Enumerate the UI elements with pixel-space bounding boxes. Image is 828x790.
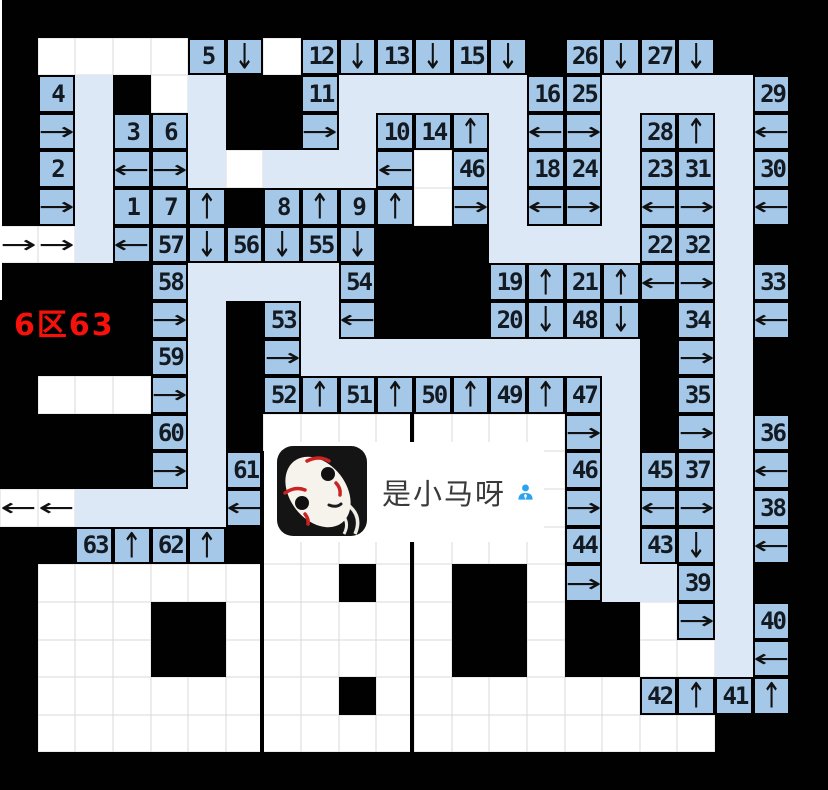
number-cell-39[interactable]: 39 [677,564,715,602]
path-cell[interactable] [113,489,151,527]
number-cell-14[interactable]: 14 [414,113,452,151]
arrow-right-cell[interactable]: → [151,376,189,414]
wall-cell [151,640,189,678]
arrow-left-cell[interactable]: ← [113,226,151,264]
empty-cell[interactable] [489,715,527,753]
path-cell[interactable] [188,113,226,151]
number-cell-63[interactable]: 63 [75,527,113,565]
arrow-right-cell[interactable]: → [677,263,715,301]
path-cell[interactable] [188,376,226,414]
path-cell[interactable] [527,339,565,377]
path-cell[interactable] [301,150,339,188]
path-cell[interactable] [715,339,753,377]
empty-cell[interactable] [113,564,151,602]
watermark-name: 是小马呀 [382,474,535,510]
number-cell-52[interactable]: 52 [263,376,301,414]
number-cell-47[interactable]: 47 [565,376,603,414]
path-cell[interactable] [640,564,678,602]
number-cell-57[interactable]: 57 [151,226,189,264]
number-cell-37[interactable]: 37 [677,451,715,489]
empty-cell[interactable] [75,677,113,715]
empty-cell[interactable] [640,640,678,678]
number-cell-54[interactable]: 54 [339,263,377,301]
number-cell-45[interactable]: 45 [640,451,678,489]
path-cell[interactable] [715,263,753,301]
path-cell[interactable] [301,301,339,339]
empty-cell[interactable] [151,677,189,715]
empty-cell[interactable] [263,38,301,76]
number-cell-2[interactable]: 2 [38,150,76,188]
number-cell-44[interactable]: 44 [565,527,603,565]
path-cell[interactable] [452,75,490,113]
arrow-up-cell[interactable]: ↑ [452,376,490,414]
empty-cell[interactable] [226,640,264,678]
path-cell[interactable] [715,489,753,527]
empty-cell[interactable] [113,677,151,715]
arrow-up-cell[interactable]: ↑ [677,677,715,715]
path-cell[interactable] [602,414,640,452]
path-cell[interactable] [715,451,753,489]
number-cell-21[interactable]: 21 [565,263,603,301]
wall-cell [226,301,264,339]
path-cell[interactable] [75,226,113,264]
arrow-right-cell[interactable]: → [452,188,490,226]
wall-cell [715,715,753,753]
number-cell-13[interactable]: 13 [376,38,414,76]
empty-cell[interactable] [113,715,151,753]
arrow-right-cell[interactable]: → [151,150,189,188]
empty-cell[interactable] [489,677,527,715]
empty-cell[interactable] [452,677,490,715]
arrow-up-cell[interactable]: ↑ [376,188,414,226]
number-cell-26[interactable]: 26 [565,38,603,76]
path-cell[interactable] [452,339,490,377]
number-cell-1[interactable]: 1 [113,188,151,226]
number-cell-3[interactable]: 3 [113,113,151,151]
empty-cell[interactable] [151,75,189,113]
number-cell-12[interactable]: 12 [301,38,339,76]
number-cell-25[interactable]: 25 [565,75,603,113]
arrow-up-cell[interactable]: ↑ [301,376,339,414]
empty-cell[interactable] [188,677,226,715]
empty-cell[interactable] [414,564,452,602]
empty-cell[interactable] [376,602,414,640]
number-cell-11[interactable]: 11 [301,75,339,113]
empty-cell[interactable] [113,38,151,76]
path-cell[interactable] [376,339,414,377]
wall-cell [715,38,753,76]
empty-cell[interactable] [565,677,603,715]
path-cell[interactable] [75,75,113,113]
path-cell[interactable] [715,113,753,151]
empty-cell[interactable] [113,640,151,678]
path-cell[interactable] [188,75,226,113]
number-cell-36[interactable]: 36 [753,414,791,452]
path-cell[interactable] [602,150,640,188]
empty-cell[interactable] [565,715,603,753]
number-cell-49[interactable]: 49 [489,376,527,414]
empty-cell[interactable] [75,640,113,678]
arrow-right-cell[interactable]: → [151,301,189,339]
arrow-left-cell[interactable]: ← [38,489,76,527]
number-cell-22[interactable]: 22 [640,226,678,264]
arrow-up-cell[interactable]: ↑ [301,188,339,226]
path-cell[interactable] [602,75,640,113]
path-cell[interactable] [715,376,753,414]
number-cell-48[interactable]: 48 [565,301,603,339]
arrow-left-cell[interactable]: ← [753,113,791,151]
path-cell[interactable] [715,226,753,264]
number-cell-42[interactable]: 42 [640,677,678,715]
arrow-left-cell[interactable]: ← [640,263,678,301]
empty-cell[interactable] [188,715,226,753]
empty-cell[interactable] [226,677,264,715]
arrow-left-cell[interactable]: ← [226,489,264,527]
path-cell[interactable] [188,301,226,339]
arrow-right-cell[interactable]: → [38,226,76,264]
empty-cell[interactable] [38,602,76,640]
number-cell-29[interactable]: 29 [753,75,791,113]
arrow-down-cell[interactable]: ↓ [677,38,715,76]
empty-cell[interactable] [151,564,189,602]
arrow-down-cell[interactable]: ↓ [602,38,640,76]
arrow-right-cell[interactable]: → [677,414,715,452]
path-cell[interactable] [226,263,264,301]
empty-cell[interactable] [301,640,339,678]
path-cell[interactable] [263,150,301,188]
path-cell[interactable] [263,263,301,301]
empty-cell[interactable] [640,715,678,753]
path-cell[interactable] [715,188,753,226]
arrow-down-cell[interactable]: ↓ [188,226,226,264]
empty-cell[interactable] [38,677,76,715]
arrow-left-cell[interactable]: ← [753,527,791,565]
number-cell-16[interactable]: 16 [527,75,565,113]
path-cell[interactable] [301,263,339,301]
number-cell-51[interactable]: 51 [339,376,377,414]
empty-cell[interactable] [414,715,452,753]
path-cell[interactable] [75,113,113,151]
number-cell-43[interactable]: 43 [640,527,678,565]
path-cell[interactable] [715,640,753,678]
empty-cell[interactable] [113,376,151,414]
wall-cell [790,226,828,264]
path-cell[interactable] [188,150,226,188]
empty-cell[interactable] [226,602,264,640]
arrow-up-cell[interactable]: ↑ [188,188,226,226]
path-cell[interactable] [188,339,226,377]
path-cell[interactable] [715,602,753,640]
arrow-left-cell[interactable]: ← [113,150,151,188]
empty-cell[interactable] [602,677,640,715]
empty-cell[interactable] [75,715,113,753]
empty-cell[interactable] [263,564,301,602]
path-cell[interactable] [339,75,377,113]
empty-cell[interactable] [414,677,452,715]
empty-cell[interactable] [38,640,76,678]
number-cell-27[interactable]: 27 [640,38,678,76]
path-cell[interactable] [677,75,715,113]
arrow-left-cell[interactable]: ← [753,451,791,489]
arrow-right-cell[interactable]: → [0,226,38,264]
wall-cell [0,527,38,565]
empty-cell[interactable] [677,715,715,753]
empty-cell[interactable] [38,38,76,76]
wall-cell [790,113,828,151]
number-cell-33[interactable]: 33 [753,263,791,301]
path-cell[interactable] [715,301,753,339]
arrow-right-cell[interactable]: → [677,489,715,527]
empty-cell[interactable] [677,640,715,678]
path-cell[interactable] [602,376,640,414]
number-cell-34[interactable]: 34 [677,301,715,339]
empty-cell[interactable] [640,602,678,640]
empty-cell[interactable] [75,376,113,414]
path-cell[interactable] [602,188,640,226]
path-cell[interactable] [188,451,226,489]
wall-cell [753,226,791,264]
path-cell[interactable] [602,113,640,151]
path-cell[interactable] [188,489,226,527]
empty-cell[interactable] [527,564,565,602]
number-cell-8[interactable]: 8 [263,188,301,226]
arrow-left-cell[interactable]: ← [753,640,791,678]
path-cell[interactable] [489,150,527,188]
path-cell[interactable] [602,564,640,602]
empty-cell[interactable] [452,715,490,753]
path-cell[interactable] [602,451,640,489]
empty-cell[interactable] [113,602,151,640]
arrow-left-cell[interactable]: ← [527,188,565,226]
path-cell[interactable] [489,113,527,151]
number-cell-60[interactable]: 60 [151,414,189,452]
path-cell[interactable] [715,564,753,602]
empty-cell[interactable] [301,564,339,602]
empty-cell[interactable] [301,715,339,753]
path-cell[interactable] [489,188,527,226]
arrow-up-cell[interactable]: ↑ [527,376,565,414]
arrow-up-cell[interactable]: ↑ [602,263,640,301]
empty-cell[interactable] [188,564,226,602]
arrow-up-cell[interactable]: ↑ [753,677,791,715]
empty-cell[interactable] [376,715,414,753]
empty-cell[interactable] [602,715,640,753]
path-cell[interactable] [715,150,753,188]
arrow-right-cell[interactable]: → [565,188,603,226]
empty-cell[interactable] [414,188,452,226]
number-cell-32[interactable]: 32 [677,226,715,264]
number-cell-28[interactable]: 28 [640,113,678,151]
arrow-right-cell[interactable]: → [151,451,189,489]
arrow-left-cell[interactable]: ← [753,301,791,339]
empty-cell[interactable] [339,602,377,640]
path-cell[interactable] [640,75,678,113]
wall-cell [376,0,414,38]
path-cell[interactable] [715,75,753,113]
number-cell-15[interactable]: 15 [452,38,490,76]
arrow-up-cell[interactable]: ↑ [113,527,151,565]
number-cell-59[interactable]: 59 [151,339,189,377]
arrow-right-cell[interactable]: → [263,339,301,377]
path-cell[interactable] [376,75,414,113]
path-cell[interactable] [715,527,753,565]
wall-cell [38,451,76,489]
path-cell[interactable] [339,113,377,151]
arrow-left-cell[interactable]: ← [753,188,791,226]
arrow-down-cell[interactable]: ↓ [489,38,527,76]
arrow-right-cell[interactable]: → [565,489,603,527]
empty-cell[interactable] [75,564,113,602]
empty-cell[interactable] [414,150,452,188]
path-cell[interactable] [602,226,640,264]
empty-cell[interactable] [38,376,76,414]
empty-cell[interactable] [527,677,565,715]
number-cell-53[interactable]: 53 [263,301,301,339]
empty-cell[interactable] [527,602,565,640]
empty-cell[interactable] [151,715,189,753]
number-cell-55[interactable]: 55 [301,226,339,264]
number-cell-10[interactable]: 10 [376,113,414,151]
number-cell-6[interactable]: 6 [151,113,189,151]
empty-cell[interactable] [263,602,301,640]
empty-cell[interactable] [301,677,339,715]
number-cell-62[interactable]: 62 [151,527,189,565]
empty-cell[interactable] [263,715,301,753]
arrow-up-cell[interactable]: ↑ [452,113,490,151]
watermark-text: 是小马呀 [382,471,506,513]
path-cell[interactable] [188,263,226,301]
arrow-down-cell[interactable]: ↓ [339,226,377,264]
number-cell-46[interactable]: 46 [452,150,490,188]
arrow-up-cell[interactable]: ↑ [527,263,565,301]
number-cell-19[interactable]: 19 [489,263,527,301]
number-cell-9[interactable]: 9 [339,188,377,226]
arrow-down-cell[interactable]: ↓ [263,226,301,264]
empty-cell[interactable] [226,150,264,188]
path-cell[interactable] [527,226,565,264]
arrow-down-cell[interactable]: ↓ [414,38,452,76]
path-cell[interactable] [489,339,527,377]
number-cell-20[interactable]: 20 [489,301,527,339]
arrow-right-cell[interactable]: → [565,564,603,602]
number-cell-7[interactable]: 7 [151,188,189,226]
arrow-right-cell[interactable]: → [677,188,715,226]
number-cell-58[interactable]: 58 [151,263,189,301]
empty-cell[interactable] [75,38,113,76]
number-cell-23[interactable]: 23 [640,150,678,188]
path-cell[interactable] [565,226,603,264]
arrow-right-cell[interactable]: → [565,113,603,151]
path-cell[interactable] [565,339,603,377]
arrow-down-cell[interactable]: ↓ [226,38,264,76]
number-cell-46[interactable]: 46 [565,451,603,489]
arrow-left-cell[interactable]: ← [376,150,414,188]
path-cell[interactable] [339,339,377,377]
number-cell-5[interactable]: 5 [188,38,226,76]
empty-cell[interactable] [376,640,414,678]
number-cell-40[interactable]: 40 [753,602,791,640]
path-cell[interactable] [188,414,226,452]
empty-cell[interactable] [414,602,452,640]
arrow-right-cell[interactable]: → [677,339,715,377]
number-cell-35[interactable]: 35 [677,376,715,414]
arrow-left-cell[interactable]: ← [339,301,377,339]
arrow-left-cell[interactable]: ← [0,489,38,527]
arrow-right-cell[interactable]: → [38,188,76,226]
empty-cell[interactable] [263,677,301,715]
arrow-up-cell[interactable]: ↑ [376,376,414,414]
empty-cell[interactable] [38,564,76,602]
number-cell-18[interactable]: 18 [527,150,565,188]
wall-cell [527,752,565,790]
path-cell[interactable] [602,339,640,377]
empty-cell[interactable] [75,602,113,640]
arrow-down-cell[interactable]: ↓ [602,301,640,339]
arrow-right-cell[interactable]: → [301,113,339,151]
arrow-left-cell[interactable]: ← [640,188,678,226]
arrow-right-cell[interactable]: → [565,414,603,452]
empty-cell[interactable] [339,715,377,753]
number-cell-4[interactable]: 4 [38,75,76,113]
empty-cell[interactable] [151,38,189,76]
empty-cell[interactable] [376,564,414,602]
number-cell-41[interactable]: 41 [715,677,753,715]
path-cell[interactable] [339,150,377,188]
number-cell-31[interactable]: 31 [677,150,715,188]
arrow-up-cell[interactable]: ↑ [188,527,226,565]
empty-cell[interactable] [226,564,264,602]
path-cell[interactable] [489,226,527,264]
path-cell[interactable] [151,489,189,527]
path-cell[interactable] [75,489,113,527]
arrow-down-cell[interactable]: ↓ [527,301,565,339]
arrow-down-cell[interactable]: ↓ [339,38,377,76]
wall-cell [640,376,678,414]
arrow-right-cell[interactable]: → [677,602,715,640]
wall-cell [565,0,603,38]
empty-cell[interactable] [414,640,452,678]
number-cell-61[interactable]: 61 [226,451,264,489]
number-cell-50[interactable]: 50 [414,376,452,414]
path-cell[interactable] [414,339,452,377]
path-cell[interactable] [414,75,452,113]
empty-cell[interactable] [301,602,339,640]
number-cell-56[interactable]: 56 [226,226,264,264]
path-cell[interactable] [75,150,113,188]
empty-cell[interactable] [376,677,414,715]
arrow-left-cell[interactable]: ← [640,489,678,527]
empty-cell[interactable] [527,715,565,753]
path-cell[interactable] [301,339,339,377]
arrow-down-cell[interactable]: ↓ [677,527,715,565]
path-cell[interactable] [602,489,640,527]
path-cell[interactable] [715,414,753,452]
number-cell-24[interactable]: 24 [565,150,603,188]
empty-cell[interactable] [339,640,377,678]
empty-cell[interactable] [38,715,76,753]
empty-cell[interactable] [226,715,264,753]
path-cell[interactable] [602,527,640,565]
number-cell-38[interactable]: 38 [753,489,791,527]
arrow-left-cell[interactable]: ← [527,113,565,151]
empty-cell[interactable] [527,640,565,678]
arrow-up-cell[interactable]: ↑ [677,113,715,151]
path-cell[interactable] [75,188,113,226]
path-cell[interactable] [489,75,527,113]
arrow-right-cell[interactable]: → [38,113,76,151]
empty-cell[interactable] [263,640,301,678]
number-cell-30[interactable]: 30 [753,150,791,188]
